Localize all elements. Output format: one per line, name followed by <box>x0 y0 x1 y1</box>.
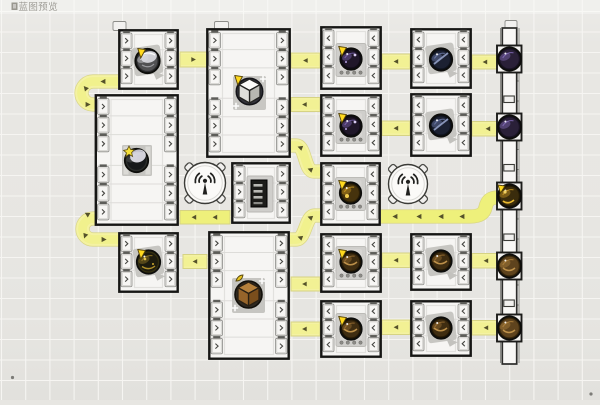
svg-text:蓝图预览: 蓝图预览 <box>19 1 59 13</box>
